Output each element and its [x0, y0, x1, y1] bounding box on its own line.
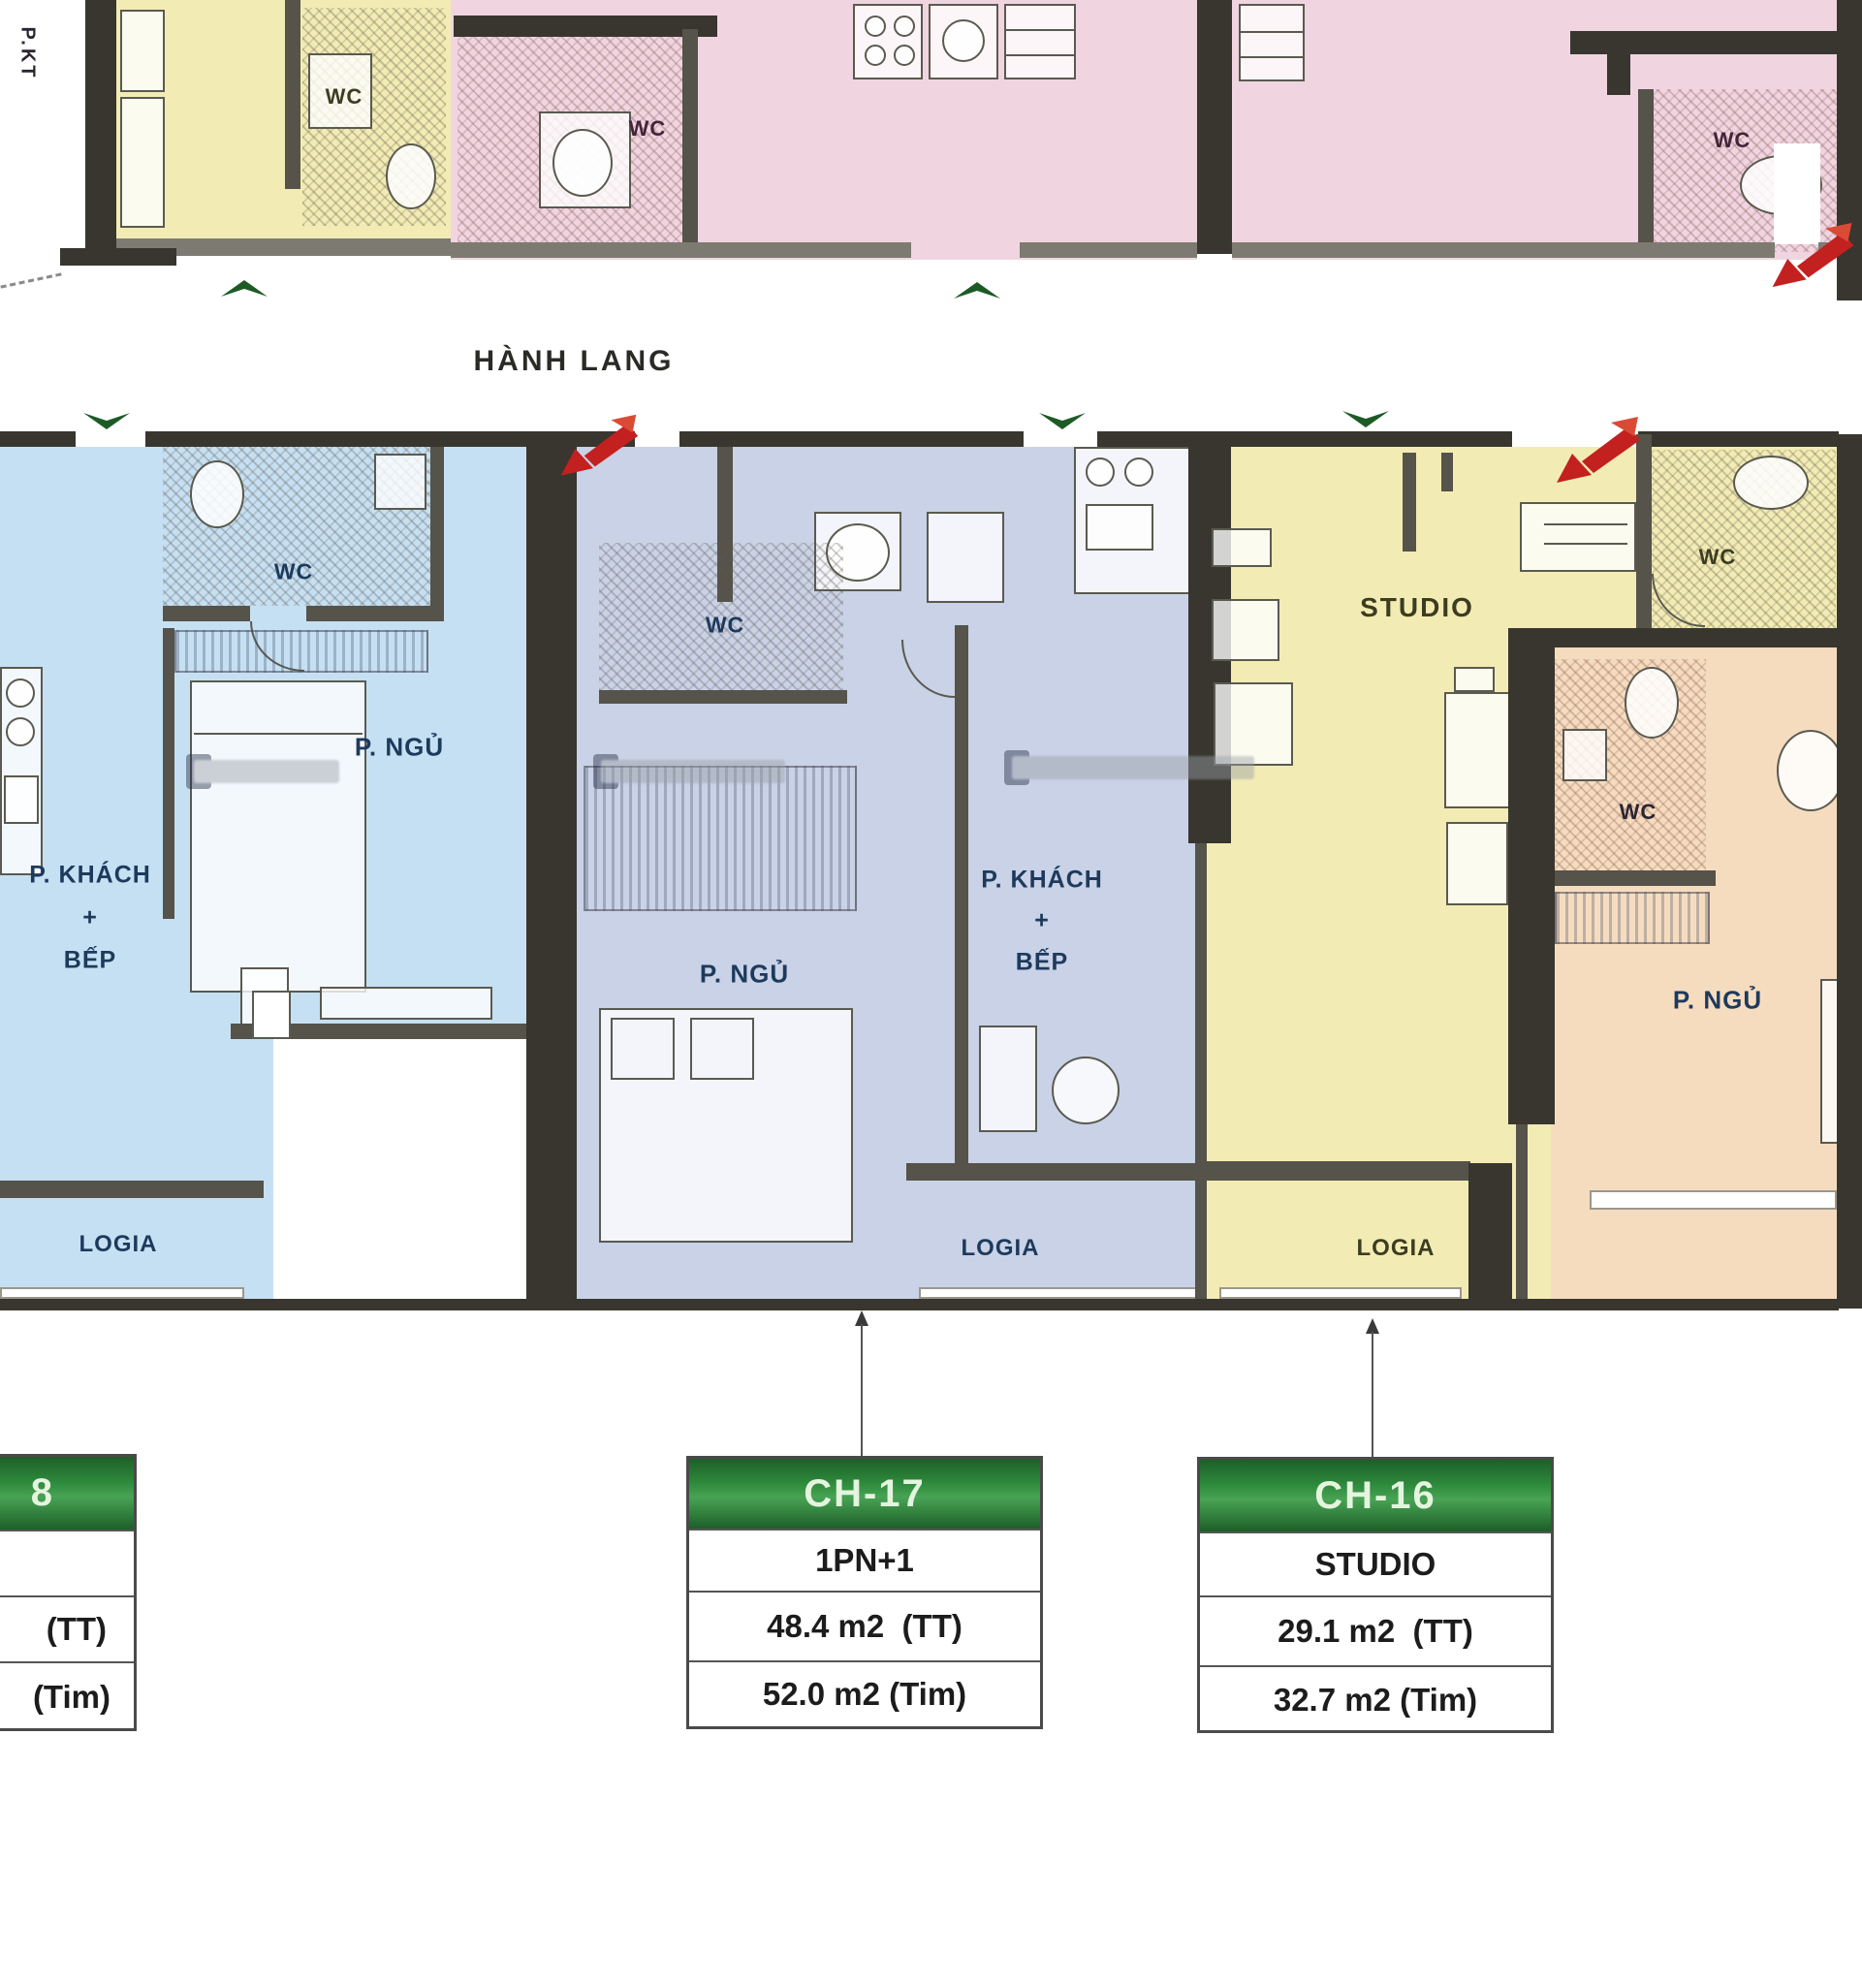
sink — [4, 775, 39, 824]
wall — [1516, 1124, 1528, 1309]
toilet-icon — [386, 143, 436, 209]
sink-grid-line — [1544, 543, 1627, 545]
room-label-living: P. KHÁCH — [29, 862, 151, 890]
bed-pillow-line — [194, 733, 363, 735]
shower-stall — [927, 512, 1004, 603]
table — [1446, 822, 1508, 905]
wall — [1570, 31, 1839, 54]
wall — [0, 1299, 1839, 1310]
watermark-text-blur — [1012, 756, 1254, 779]
table-header: 8 — [0, 1457, 134, 1530]
table-header-text: 8 — [31, 1471, 54, 1515]
door-column — [252, 991, 291, 1039]
door-gap — [635, 431, 679, 447]
bed-pillow — [690, 1018, 754, 1080]
room-label-kitchen: BẾP — [64, 947, 116, 975]
wall — [1020, 242, 1197, 258]
room-label-bedroom: P. NGỦ — [355, 733, 444, 763]
highlight-arrow-icon — [1553, 415, 1642, 489]
table-row-area-tim: (Tim) — [0, 1661, 134, 1731]
corridor-label: HÀNH LANG — [474, 345, 675, 378]
wall — [599, 690, 847, 704]
wall — [526, 431, 577, 1309]
sink-bowl — [942, 19, 985, 62]
wardrobe — [1555, 892, 1710, 944]
window-sill — [919, 1287, 1202, 1299]
burner — [1086, 458, 1115, 487]
room-label-wc: WC — [326, 84, 363, 110]
room-label-logia: LOGIA — [79, 1231, 158, 1258]
leader-dashed-line — [0, 272, 61, 288]
burner — [894, 16, 915, 37]
wall — [1195, 843, 1207, 1309]
door-gap — [1024, 431, 1097, 447]
technical-room-label: P.KT — [16, 27, 39, 80]
wall — [1207, 1161, 1470, 1181]
entry-arrow-icon — [81, 411, 132, 432]
wall — [955, 625, 968, 1178]
room-label-wc: WC — [274, 559, 313, 585]
exterior-notch — [273, 1039, 526, 1309]
stove-icon — [853, 4, 923, 79]
entry-arrow-icon — [952, 279, 1002, 300]
toilet-icon — [552, 129, 613, 197]
highlight-arrow-icon — [557, 412, 640, 482]
wall — [1232, 242, 1775, 258]
toilet-icon — [190, 460, 244, 528]
wall — [1441, 453, 1453, 491]
window-sill — [1219, 1287, 1462, 1299]
watermark-text-blur — [194, 760, 339, 783]
bed — [190, 680, 366, 993]
entry-arrow-icon — [1341, 409, 1391, 430]
wardrobe — [584, 766, 857, 911]
toilet-icon — [1777, 730, 1845, 811]
wall — [85, 0, 116, 250]
burner — [894, 45, 915, 66]
room-label-studio: STUDIO — [1360, 592, 1474, 623]
room-label-logia: LOGIA — [962, 1235, 1040, 1262]
wall — [430, 447, 444, 619]
table-row-area-tt: 48.4 m2 (TT) — [689, 1591, 1040, 1660]
room-label-living: P. KHÁCH — [981, 867, 1103, 895]
wall — [1638, 89, 1654, 252]
toilet-icon — [1733, 456, 1809, 510]
closet — [1212, 528, 1272, 567]
wall — [682, 29, 698, 252]
counter-grid — [1004, 4, 1076, 79]
sink-grid-line — [1544, 523, 1627, 525]
counter-line — [1004, 29, 1076, 31]
leader-line — [1372, 1332, 1373, 1457]
room-label-wc: WC — [1699, 545, 1737, 570]
wall — [1837, 434, 1862, 1309]
burner — [865, 45, 886, 66]
room-label-bedroom: P. NGỦ — [1673, 986, 1762, 1016]
sink — [1086, 504, 1153, 551]
wall — [1197, 0, 1232, 254]
burner — [6, 678, 35, 708]
table-cell: 52.0 m2 (Tim) — [763, 1676, 966, 1713]
counter-line — [1239, 56, 1305, 58]
wall — [1403, 453, 1416, 552]
floor-plan-canvas: P.KT WC WC WC — [0, 0, 1862, 1988]
table-cell: STUDIO — [1315, 1546, 1436, 1583]
room-label-plus: + — [82, 904, 98, 932]
bed-pillow — [611, 1018, 675, 1080]
wall — [1555, 870, 1716, 886]
burner — [865, 16, 886, 37]
leader-line — [861, 1324, 863, 1456]
shelf — [1454, 667, 1495, 692]
burner — [6, 717, 35, 746]
highlight-arrow-icon — [1766, 221, 1858, 293]
table-header: CH-17 — [689, 1459, 1040, 1529]
counter-line — [1239, 31, 1305, 33]
sofa — [979, 1026, 1037, 1132]
wall — [451, 242, 911, 258]
room-label-plus: + — [1034, 907, 1050, 935]
wall — [1512, 628, 1839, 647]
unit-info-table-ch17: CH-17 1PN+1 48.4 m2 (TT) 52.0 m2 (Tim) — [686, 1456, 1043, 1729]
table — [320, 987, 492, 1020]
table-row-area-tim: 52.0 m2 (Tim) — [689, 1660, 1040, 1726]
table-row-area-tim: 32.7 m2 (Tim) — [1200, 1665, 1551, 1733]
unit-info-table-left: 8 (TT) (Tim) — [0, 1454, 137, 1731]
closet — [1212, 599, 1279, 661]
room-label-wc: WC — [706, 613, 744, 639]
wardrobe — [1214, 682, 1293, 766]
room-label-wc: WC — [1714, 128, 1752, 153]
room-label-kitchen: BẾP — [1016, 949, 1068, 977]
wall — [60, 248, 176, 266]
bed — [1444, 692, 1516, 808]
sink — [374, 454, 426, 510]
table-row-area-tt: (TT) — [0, 1595, 134, 1661]
entry-arrow-icon — [219, 277, 269, 299]
room-label-bedroom: P. NGỦ — [700, 960, 789, 990]
table-row-type — [0, 1530, 134, 1595]
table-row-type: STUDIO — [1200, 1531, 1551, 1595]
window-sill — [1590, 1190, 1837, 1210]
room-label-wc: WC — [1620, 800, 1657, 825]
window-sill — [0, 1287, 244, 1299]
burner — [1124, 458, 1153, 487]
table-cell: 48.4 m2 (TT) — [767, 1608, 963, 1645]
table-header-text: CH-17 — [804, 1472, 926, 1516]
door-gap — [250, 606, 306, 621]
closet — [120, 10, 165, 92]
counter-grid — [1239, 4, 1305, 81]
unit-info-table-ch16: CH-16 STUDIO 29.1 m2 (TT) 32.7 m2 (Tim) — [1197, 1457, 1554, 1733]
toilet-icon — [1625, 667, 1679, 739]
wall — [906, 1163, 1202, 1181]
sink — [1562, 729, 1607, 781]
wardrobe — [174, 630, 428, 673]
table-cell: 29.1 m2 (TT) — [1278, 1613, 1473, 1650]
room-label-logia: LOGIA — [1357, 1235, 1436, 1262]
kitchen-counter — [1520, 502, 1636, 572]
wall — [1508, 628, 1555, 1124]
room-label-wc: WC — [629, 116, 667, 142]
entry-arrow-icon — [1037, 411, 1088, 432]
wall — [0, 1181, 264, 1198]
wall — [454, 16, 717, 37]
closet — [120, 97, 165, 228]
wall — [1468, 1163, 1512, 1309]
wall — [1607, 54, 1630, 95]
watermark-text-blur — [601, 760, 785, 783]
table-cell: 1PN+1 — [815, 1542, 914, 1579]
wall — [285, 0, 300, 189]
table-cell: (TT) — [47, 1611, 107, 1648]
wall — [163, 628, 174, 919]
counter-line — [1004, 54, 1076, 56]
table-header-text: CH-16 — [1314, 1474, 1436, 1518]
table-row-type: 1PN+1 — [689, 1529, 1040, 1591]
dining-table — [1052, 1057, 1120, 1124]
table-row-area-tt: 29.1 m2 (TT) — [1200, 1595, 1551, 1665]
table-cell: 32.7 m2 (Tim) — [1274, 1682, 1477, 1719]
table-header: CH-16 — [1200, 1460, 1551, 1531]
table-cell: (Tim) — [33, 1679, 110, 1716]
door-gap — [76, 431, 145, 447]
